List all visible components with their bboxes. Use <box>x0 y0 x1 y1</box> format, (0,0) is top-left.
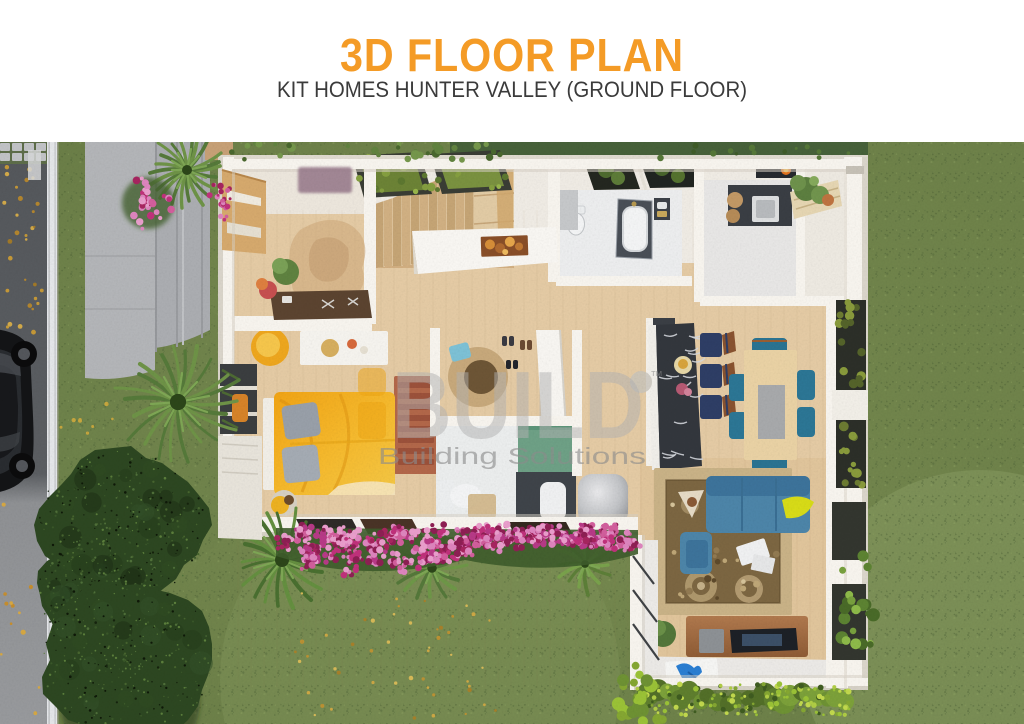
svg-text:3D FLOOR PLAN: 3D FLOOR PLAN <box>340 29 684 81</box>
svg-text:KIT HOMES HUNTER VALLEY (GROUN: KIT HOMES HUNTER VALLEY (GROUND FLOOR) <box>277 77 747 102</box>
